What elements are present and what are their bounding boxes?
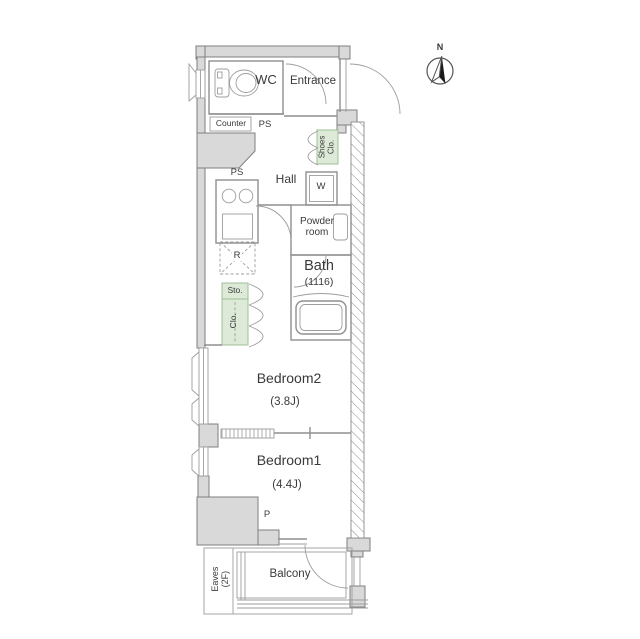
wc-label: WC [246,73,286,88]
shoes-closet-label: Shoes Clo. [319,128,337,165]
hatched-wall [351,122,364,538]
bedroom-partition [221,427,351,439]
balcony-label: Balcony [250,568,330,581]
window [192,348,208,426]
bath-size-label: (1116) [294,277,344,289]
door-arc [305,545,348,588]
entrance-label: Entrance [283,75,343,88]
bathtub-icon [296,301,346,334]
closet-label: Clo. [229,308,239,334]
north-compass-icon [427,55,453,84]
storage-label: Sto. [221,286,249,296]
eaves-label-line1: Eaves [210,557,220,601]
floor-plan-drawing [0,0,640,639]
bedroom2-label: Bedroom2 [239,371,339,387]
ps-upper-label: PS [252,120,278,131]
pipe-space-label: P [257,510,277,521]
stove-icon [222,189,253,203]
window [189,64,205,101]
bath-label: Bath [294,258,344,274]
eaves-label: Eaves (2F) [210,557,230,601]
compass-north-label: N [430,42,450,52]
hall-label: Hall [261,173,311,186]
sink-icon [223,214,253,239]
counter-label: Counter [211,119,251,129]
window [192,447,208,476]
ps-lower-label: PS [222,168,252,179]
bedroom1-label: Bedroom1 [239,453,339,469]
powder-room-label: Powder room [292,216,342,238]
floor-plan-canvas: WC Entrance Counter PS PS Shoes Clo. Hal… [0,0,640,639]
eaves-label-line2: (2F) [220,557,230,601]
folding-door [249,284,263,347]
bedroom1-size-label: (4.4J) [247,479,327,492]
door-arc [350,64,400,114]
refrigerator-label: R [227,251,247,262]
door-arc [256,206,291,241]
washer-label: W [311,182,331,193]
balcony-window [278,539,307,544]
bedroom2-size-label: (3.8J) [245,396,325,409]
